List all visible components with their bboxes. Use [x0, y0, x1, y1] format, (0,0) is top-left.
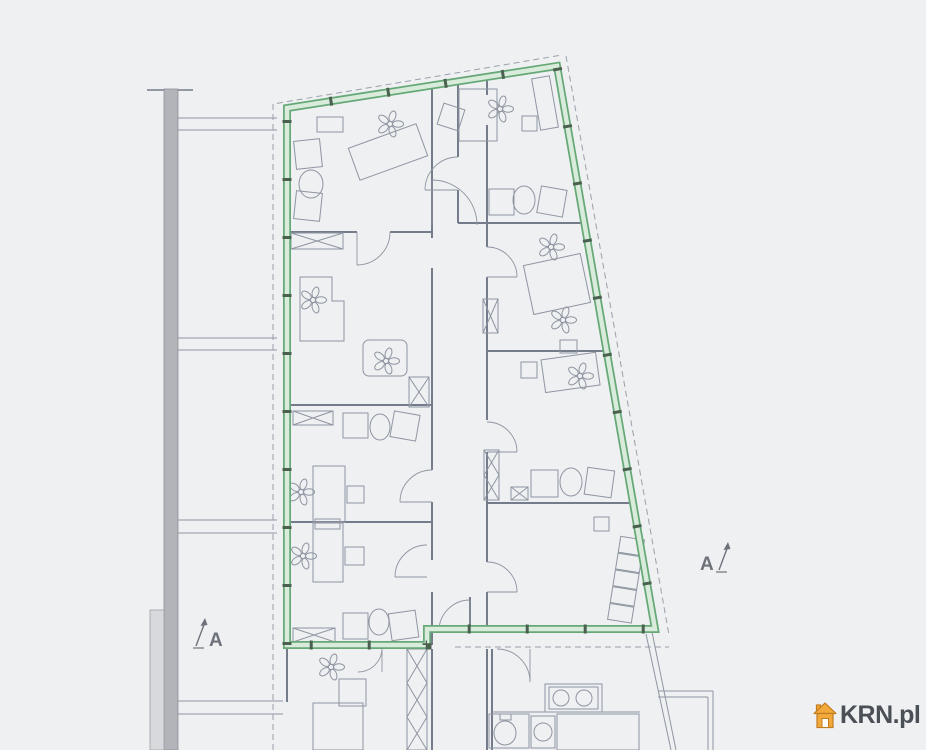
unit-boundary — [287, 66, 655, 645]
desk — [313, 466, 345, 522]
furniture-room-top-right — [437, 76, 567, 217]
furniture-room-left-3 — [288, 411, 420, 522]
desk — [313, 523, 343, 582]
office-chair — [377, 110, 403, 138]
desk — [348, 124, 427, 181]
section-marker-label: A — [209, 631, 223, 650]
floor-plan-image: A A KRN.pl — [0, 0, 926, 750]
section-marker-a-right: A — [700, 540, 731, 574]
furniture-room-top-left — [294, 110, 428, 221]
furniture-room-left-2 — [291, 233, 429, 407]
watermark-text: KRN.pl — [840, 701, 920, 730]
house-icon — [813, 702, 837, 729]
watermark: KRN.pl — [813, 701, 920, 730]
fridge — [557, 714, 639, 750]
hatched-wall-strip — [407, 649, 427, 750]
desk — [459, 89, 497, 141]
kitchen-fixtures — [487, 649, 640, 750]
door-arcs — [357, 157, 517, 631]
stove — [545, 684, 602, 712]
below-unit-rooms — [287, 632, 713, 750]
washing-machine — [531, 716, 555, 748]
furniture-room-left-4 — [290, 519, 419, 642]
section-marker-label: A — [700, 555, 714, 574]
desk — [523, 254, 590, 315]
window-node-ticks — [287, 66, 655, 645]
section-arrow-icon — [715, 540, 731, 574]
section-marker-a-left: A — [193, 616, 223, 650]
sink — [489, 714, 529, 748]
floor-plan-drawing — [0, 0, 926, 750]
l-desk — [300, 277, 344, 341]
furniture-room-right-2 — [483, 233, 591, 334]
section-arrow-icon — [193, 616, 208, 650]
furniture-room-right-3 — [484, 340, 615, 500]
interior-walls — [287, 77, 633, 645]
